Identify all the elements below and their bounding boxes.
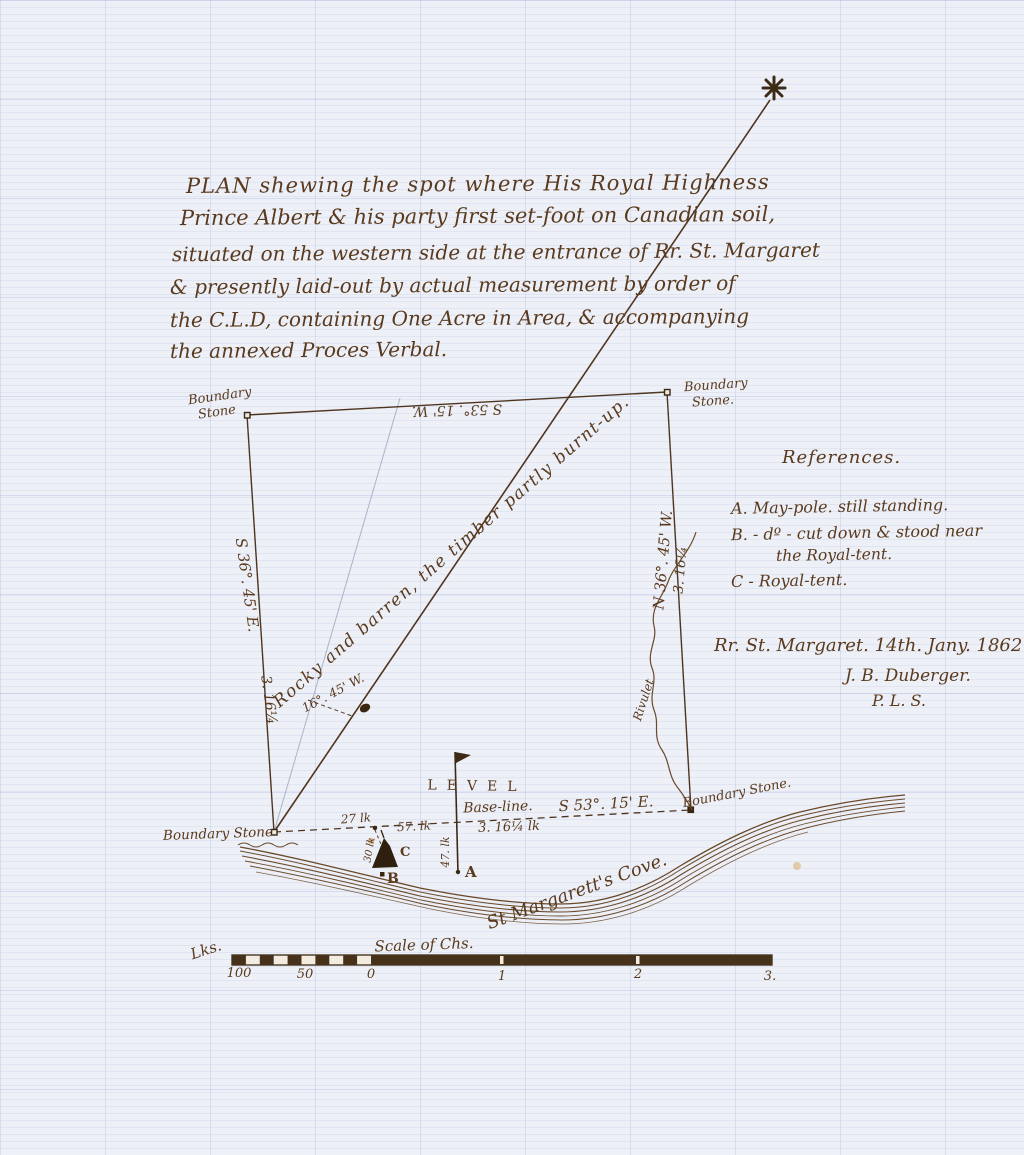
boundary-lines: [247, 392, 691, 832]
reference-item-a: A. May-pole. still standing.: [731, 496, 949, 517]
boundary-stone-marker-tl: [245, 413, 251, 419]
point-b-label: B: [387, 872, 399, 887]
base-line-length: 3. 16¼ lk: [478, 820, 540, 836]
scale-bar: [232, 955, 772, 965]
scale-tick-1: 1: [498, 970, 506, 984]
point-a-marker: [456, 870, 460, 874]
point-a-label: A: [465, 864, 477, 881]
measure-27lk: 27 lk: [340, 811, 371, 826]
maypole-b-marker: [380, 872, 385, 877]
boundary-stone-marker-tr: [665, 390, 671, 396]
references-heading: References.: [782, 448, 901, 468]
scale-tick-3: 3.: [764, 970, 776, 984]
base-line-point: [373, 826, 377, 830]
paper-stain: [793, 862, 801, 870]
signature-place-date: Rr. St. Margaret. 14th. Jany. 1862.: [714, 636, 1024, 656]
title-line-4: & presently laid-out by actual measureme…: [170, 272, 736, 298]
scale-tick-100: 100: [227, 967, 252, 981]
survey-plan-page: PLAN shewing the spot where His Royal Hi…: [0, 0, 1024, 1155]
reference-item-b2: the Royal-tent.: [776, 546, 892, 565]
scale-title: Scale of Chs.: [374, 935, 474, 955]
scale-tick-2: 2: [634, 968, 642, 982]
title-line-5: the C.L.D, containing One Acre in Area, …: [170, 305, 749, 331]
title-line-1: PLAN shewing the spot where His Royal Hi…: [186, 171, 770, 198]
scale-tick-50: 50: [297, 968, 314, 982]
reference-item-c: C - Royal-tent.: [731, 571, 848, 591]
flag-icon: [455, 752, 471, 763]
boundary-stone-label-tr2: Stone.: [692, 394, 735, 411]
signature-credential: P. L. S.: [872, 692, 926, 710]
measure-57lk: 57. lk: [397, 820, 432, 835]
title-line-6: the annexed Proces Verbal.: [170, 338, 447, 362]
bearing-top: S 53°. 15' W.: [412, 400, 503, 418]
level-pole: [455, 752, 458, 874]
measure-47lk: 47. lk: [440, 836, 452, 867]
base-line-label: Base-line.: [463, 799, 533, 817]
level-station-label: LEVEL: [427, 778, 526, 795]
north-star-icon: [763, 77, 785, 99]
title-line-3: situated on the western side at the entr…: [172, 239, 820, 266]
royal-tent-icon: [372, 830, 398, 868]
title-line-2: Prince Albert & his party first set-foot…: [180, 203, 775, 230]
scale-tick-0: 0: [367, 968, 375, 982]
point-c-label: C: [400, 846, 410, 860]
signature-name: J. B. Duberger.: [845, 667, 971, 686]
